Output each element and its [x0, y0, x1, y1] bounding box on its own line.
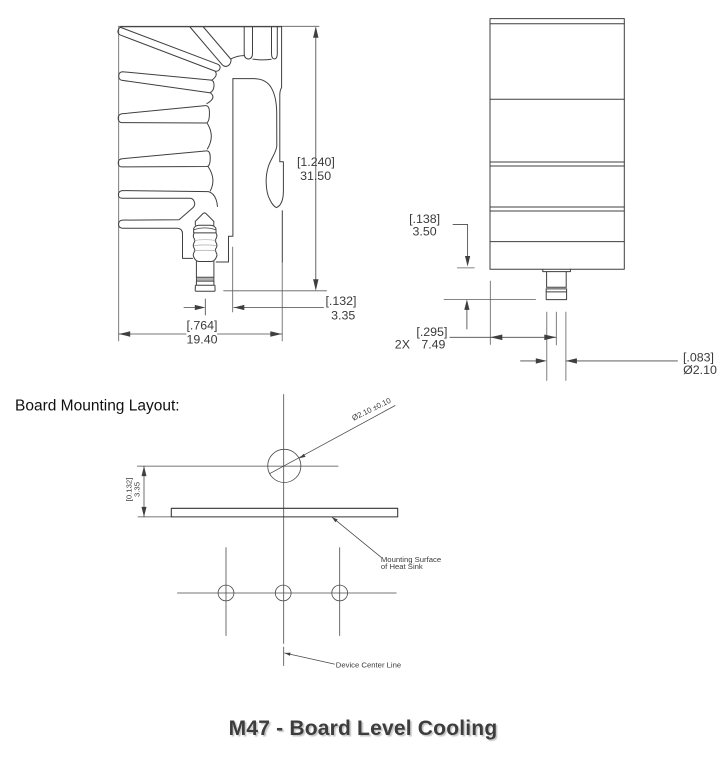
- svg-text:[.764]: [.764]: [186, 319, 217, 333]
- svg-text:2X: 2X: [395, 338, 410, 352]
- svg-text:Ø2.10: Ø2.10: [683, 363, 717, 377]
- svg-text:Board Mounting Layout:: Board Mounting Layout:: [15, 398, 180, 415]
- svg-text:of Heat Sink: of Heat Sink: [381, 562, 423, 571]
- svg-text:3.50: 3.50: [413, 225, 437, 239]
- svg-text:3.35: 3.35: [133, 482, 142, 497]
- svg-text:19.40: 19.40: [186, 333, 217, 347]
- svg-text:7.49: 7.49: [421, 338, 445, 352]
- svg-text:[1.240]: [1.240]: [297, 155, 335, 169]
- svg-text:3.35: 3.35: [331, 308, 355, 322]
- svg-text:[.132]: [.132]: [325, 294, 356, 308]
- svg-text:Device Center Line: Device Center Line: [336, 660, 401, 669]
- svg-text:31.50: 31.50: [300, 169, 331, 183]
